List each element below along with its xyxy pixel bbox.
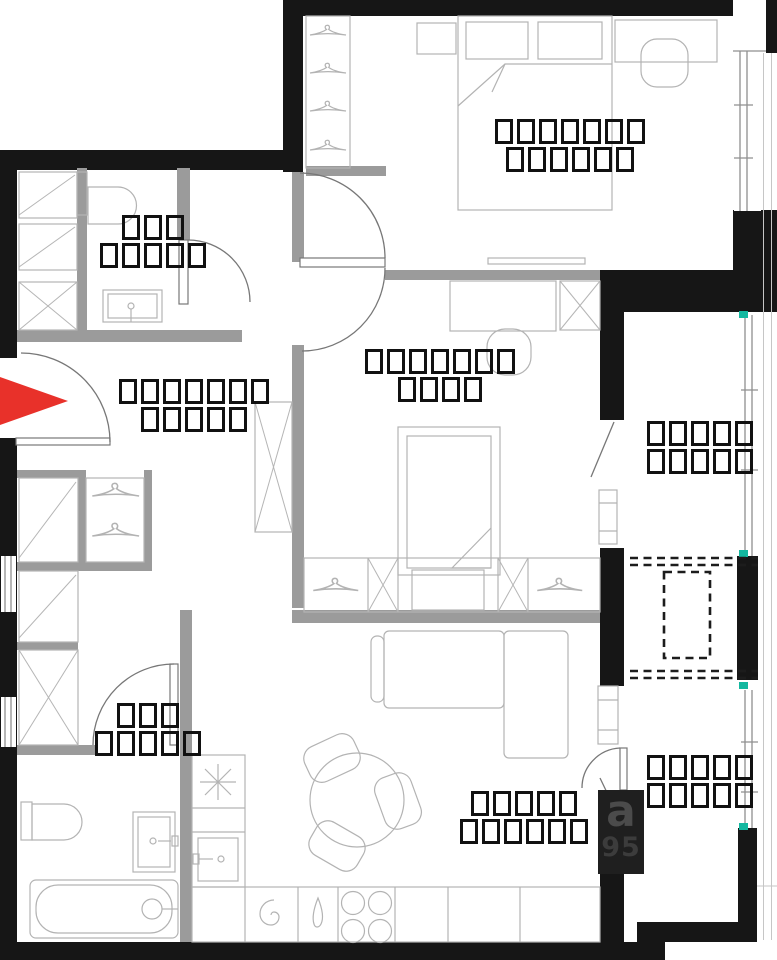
label-line <box>93 731 203 758</box>
single-bed <box>398 427 500 575</box>
washbasin-icon <box>103 290 162 322</box>
label-line <box>363 377 517 404</box>
tv-console-master <box>488 258 585 264</box>
hall-wardrobe-hangers <box>86 478 144 562</box>
label-line <box>493 119 647 146</box>
radiator-bedroom2 <box>599 490 617 544</box>
label-line <box>98 215 208 242</box>
entrance-arrow <box>0 377 68 425</box>
stove-icon <box>342 892 392 943</box>
bedside-table <box>417 23 456 54</box>
dressing-desk <box>615 20 717 87</box>
watermark-letter: a <box>598 790 644 834</box>
label-line <box>645 755 755 782</box>
label-line <box>363 349 517 376</box>
label-line <box>117 379 271 406</box>
room-label-bathroom-bottom <box>93 702 203 759</box>
double-bed <box>458 16 612 210</box>
oven-spiral-icon <box>260 900 279 925</box>
watermark-number: 95 <box>598 835 644 861</box>
label-line <box>493 147 647 174</box>
sofa <box>371 631 568 758</box>
kitchen-counter-left <box>192 755 245 887</box>
loggia-door-bedroom2 <box>591 422 614 477</box>
exterior-walls <box>0 0 777 960</box>
floor-plan-canvas: a 95 <box>0 0 777 960</box>
loggia-door-living <box>582 748 627 790</box>
hall-closet-left <box>19 478 78 745</box>
floor-plan-drawing <box>0 0 777 960</box>
room-label-bedroom-second <box>363 348 517 405</box>
label-line <box>117 407 271 434</box>
label-line <box>458 791 590 818</box>
bedroom-vestibule-doors <box>300 173 385 351</box>
faucet-drop-icon <box>313 898 322 927</box>
room-label-hallway <box>117 378 271 435</box>
closet-shelves-top <box>19 172 77 330</box>
label-line <box>645 421 755 448</box>
label-line <box>98 243 208 270</box>
label-line <box>645 449 755 476</box>
bedroom2-wardrobe-x <box>560 281 600 330</box>
watermark: a 95 <box>598 790 644 874</box>
room-label-bathroom-top <box>98 214 208 271</box>
label-line <box>93 703 203 730</box>
room-label-kitchen-living <box>458 790 590 847</box>
kitchen-counter-bottom <box>192 887 600 943</box>
room-label-loggia-lower <box>645 754 755 811</box>
room-label-loggia-upper <box>645 420 755 477</box>
master-wardrobe-hangers <box>306 16 350 168</box>
bedroom2-wardrobe-row <box>304 558 600 612</box>
label-line <box>645 783 755 810</box>
asterisk-icon <box>200 764 236 800</box>
toilet-bottom-icon <box>21 802 82 840</box>
kitchen-sink-icon <box>193 838 238 881</box>
radiator-living <box>598 686 618 744</box>
room-label-bedroom-main <box>493 118 647 175</box>
bathtub-icon <box>30 880 178 938</box>
washbasin-bottom-icon <box>133 812 178 872</box>
label-line <box>458 819 590 846</box>
dining-table <box>299 729 425 876</box>
